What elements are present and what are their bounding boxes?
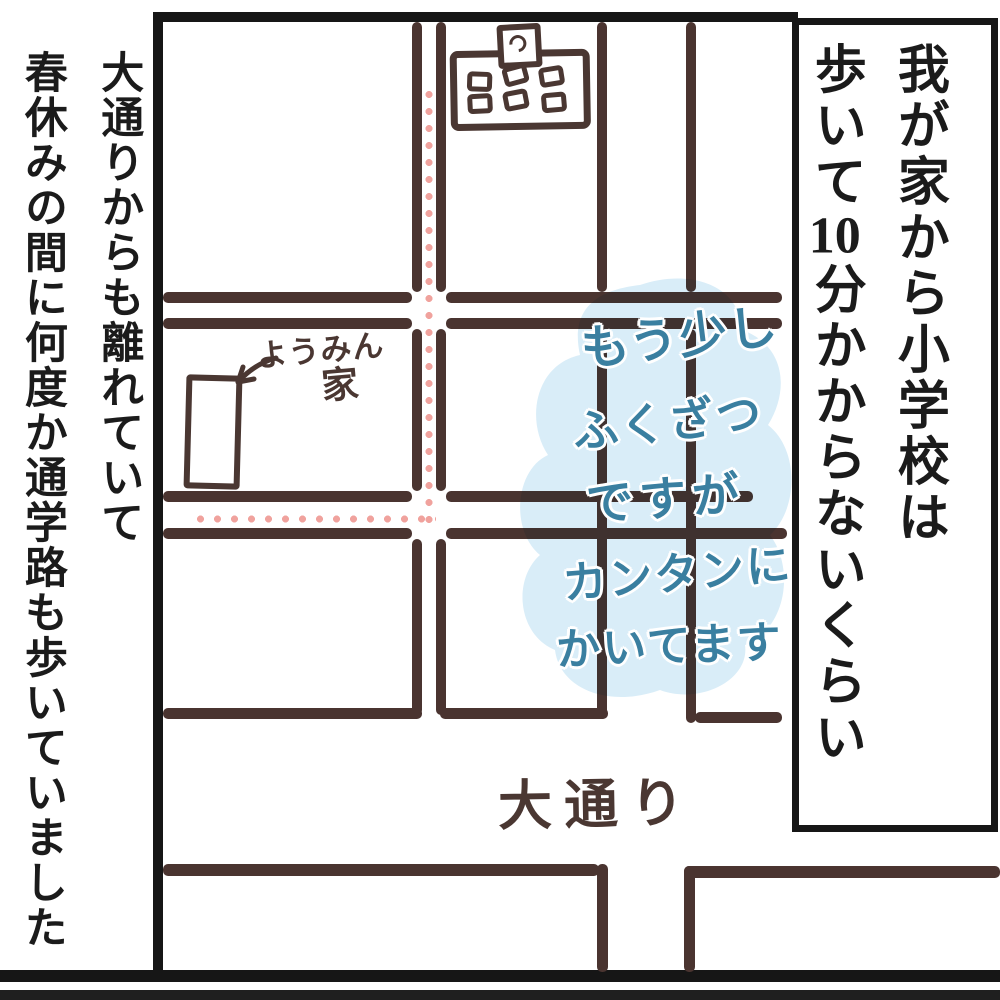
road-segment [436,22,446,292]
school-window-icon [538,65,566,89]
left-caption-column-2: 春休みの間に何度か通学路も歩いていました [10,50,72,970]
house-label: ようみん 家 [255,328,411,411]
road-segment [436,539,446,715]
right-caption-column-1: 我が家から小学校は [889,42,946,812]
map-frame-top [153,12,798,22]
road-segment [163,864,599,876]
comic-panel: 大通りからも離れていて 春休みの間に何度か通学路も歩いていました [0,0,1000,1000]
right-caption-column-2: 歩いて10分かからないくらい [806,42,863,812]
road-segment [412,329,422,491]
school-window-icon [467,71,493,92]
left-caption: 大通りからも離れていて 春休みの間に何度か通学路も歩いていました [10,50,149,970]
road-segment [412,22,422,292]
school-window-icon [541,91,568,113]
school-clock-tower [496,23,542,69]
walking-route-dots-vertical [424,86,434,524]
house-label-kanji: 家 [320,360,411,405]
right-caption-col2-number: 10 [806,210,863,262]
road-segment [597,864,608,972]
note-line: かいてます [555,606,784,678]
road-label: 大通り [497,758,696,840]
right-caption: 我が家から小学校は 歩いて10分かからないくらい [806,42,946,812]
school-window-icon [502,88,530,112]
clock-icon [506,32,530,56]
road-segment [163,528,412,539]
road-segment [695,712,782,723]
road-segment [597,22,607,292]
road-segment [163,491,412,502]
school-icon [449,23,587,125]
road-segment [412,539,422,715]
road-segment [163,708,422,719]
left-caption-column-1: 大通りからも離れていて [86,50,148,970]
next-panel-edge [0,990,1000,1000]
map-frame-left [153,12,163,982]
right-caption-col2-pre: 歩いて [806,42,863,210]
road-segment [684,866,695,972]
note-line: ですが [584,455,747,535]
right-caption-col2-post: 分かからないくらい [806,262,863,766]
map-frame-bottom [0,970,1000,982]
road-segment [436,329,446,491]
road-segment [684,866,1000,878]
school-window-icon [467,93,493,114]
walking-route-dots-horizontal [192,514,436,524]
road-segment [163,292,412,303]
road-segment [686,22,696,292]
